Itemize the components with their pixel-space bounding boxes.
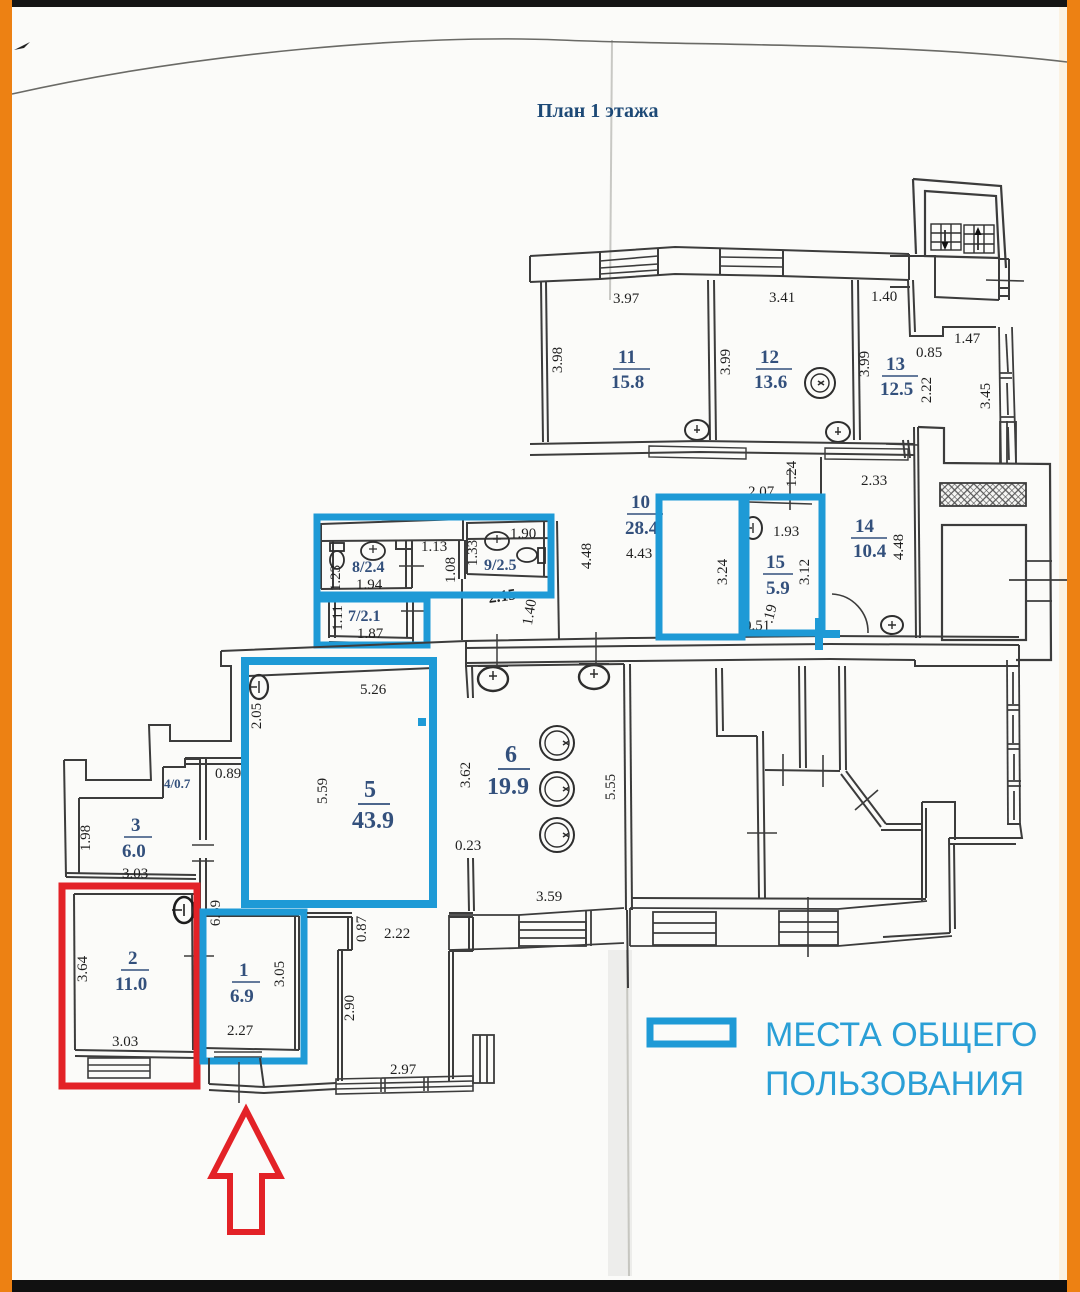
svg-text:1.40: 1.40: [871, 289, 897, 305]
svg-text:5.9: 5.9: [766, 578, 790, 599]
svg-text:ПОЛЬЗОВАНИЯ: ПОЛЬЗОВАНИЯ: [765, 1065, 1024, 1103]
svg-text:1.11: 1.11: [330, 605, 346, 631]
svg-text:1.23: 1.23: [328, 565, 344, 591]
svg-text:12.5: 12.5: [880, 379, 913, 400]
svg-text:7/2.1: 7/2.1: [348, 608, 380, 625]
svg-text:10.4: 10.4: [853, 541, 887, 562]
svg-text:4/0.7: 4/0.7: [164, 776, 191, 791]
svg-text:1.87: 1.87: [357, 626, 384, 642]
svg-text:3.64: 3.64: [75, 955, 91, 982]
svg-text:1.90: 1.90: [510, 526, 536, 542]
svg-text:5.26: 5.26: [360, 682, 387, 698]
svg-text:2.90: 2.90: [342, 995, 358, 1021]
svg-text:13.6: 13.6: [754, 372, 787, 393]
svg-text:3.99: 3.99: [857, 351, 873, 377]
svg-text:0.23: 0.23: [455, 838, 481, 854]
svg-text:1.47: 1.47: [954, 331, 981, 347]
svg-text:0.85: 0.85: [916, 345, 942, 361]
svg-text:3.62: 3.62: [458, 762, 474, 788]
svg-text:4.48: 4.48: [891, 534, 907, 560]
svg-text:3.97: 3.97: [613, 291, 640, 307]
svg-text:11.0: 11.0: [115, 974, 147, 995]
svg-text:0.89: 0.89: [215, 766, 241, 782]
svg-text:1: 1: [239, 960, 249, 981]
svg-text:10: 10: [631, 492, 650, 513]
svg-text:3.41: 3.41: [769, 290, 795, 306]
svg-text:6.9: 6.9: [230, 986, 254, 1007]
svg-text:2.27: 2.27: [227, 1023, 254, 1039]
svg-text:1.94: 1.94: [356, 577, 383, 593]
svg-text:3.59: 3.59: [536, 889, 562, 905]
svg-text:3.03: 3.03: [122, 866, 148, 882]
svg-text:1.24: 1.24: [784, 460, 800, 487]
svg-text:4.43: 4.43: [626, 546, 652, 562]
svg-text:2.22: 2.22: [919, 377, 935, 403]
svg-text:3.12: 3.12: [797, 559, 813, 585]
svg-text:2.97: 2.97: [390, 1062, 417, 1078]
svg-text:15.8: 15.8: [611, 372, 644, 393]
svg-text:2.05: 2.05: [249, 703, 265, 729]
svg-text:1.13: 1.13: [421, 539, 447, 555]
svg-text:5: 5: [364, 777, 376, 803]
svg-text:2: 2: [128, 948, 138, 969]
svg-text:3.99: 3.99: [718, 349, 734, 375]
svg-text:МЕСТА ОБЩЕГО: МЕСТА ОБЩЕГО: [765, 1016, 1037, 1054]
svg-text:9/2.5: 9/2.5: [484, 557, 516, 574]
svg-text:28.4: 28.4: [625, 518, 659, 539]
svg-text:3.05: 3.05: [272, 961, 288, 987]
svg-text:12: 12: [760, 347, 779, 368]
svg-text:3.24: 3.24: [715, 558, 731, 585]
svg-text:1.98: 1.98: [78, 825, 94, 851]
svg-text:14: 14: [855, 516, 875, 537]
svg-text:11: 11: [618, 347, 636, 368]
svg-text:1.08: 1.08: [443, 557, 459, 583]
svg-text:1.93: 1.93: [773, 524, 799, 540]
svg-text:19.9: 19.9: [487, 774, 529, 800]
svg-text:43.9: 43.9: [352, 808, 394, 834]
svg-text:0.87: 0.87: [354, 915, 370, 942]
svg-text:1.33: 1.33: [465, 540, 481, 566]
svg-text:13: 13: [886, 354, 905, 375]
svg-text:4.48: 4.48: [579, 543, 595, 569]
svg-text:3: 3: [131, 815, 141, 836]
svg-text:3.03: 3.03: [112, 1034, 138, 1050]
svg-text:6: 6: [505, 742, 517, 768]
svg-text:15: 15: [766, 552, 785, 573]
svg-text:6.0: 6.0: [122, 841, 146, 862]
svg-text:8/2.4: 8/2.4: [352, 559, 384, 576]
svg-text:2.33: 2.33: [861, 473, 887, 489]
svg-text:5.59: 5.59: [315, 778, 331, 804]
svg-text:5.55: 5.55: [603, 774, 619, 800]
svg-text:3.45: 3.45: [978, 383, 994, 409]
svg-text:2.22: 2.22: [384, 926, 410, 942]
svg-text:3.98: 3.98: [550, 347, 566, 373]
svg-text:План 1 этажа: План 1 этажа: [537, 100, 659, 122]
